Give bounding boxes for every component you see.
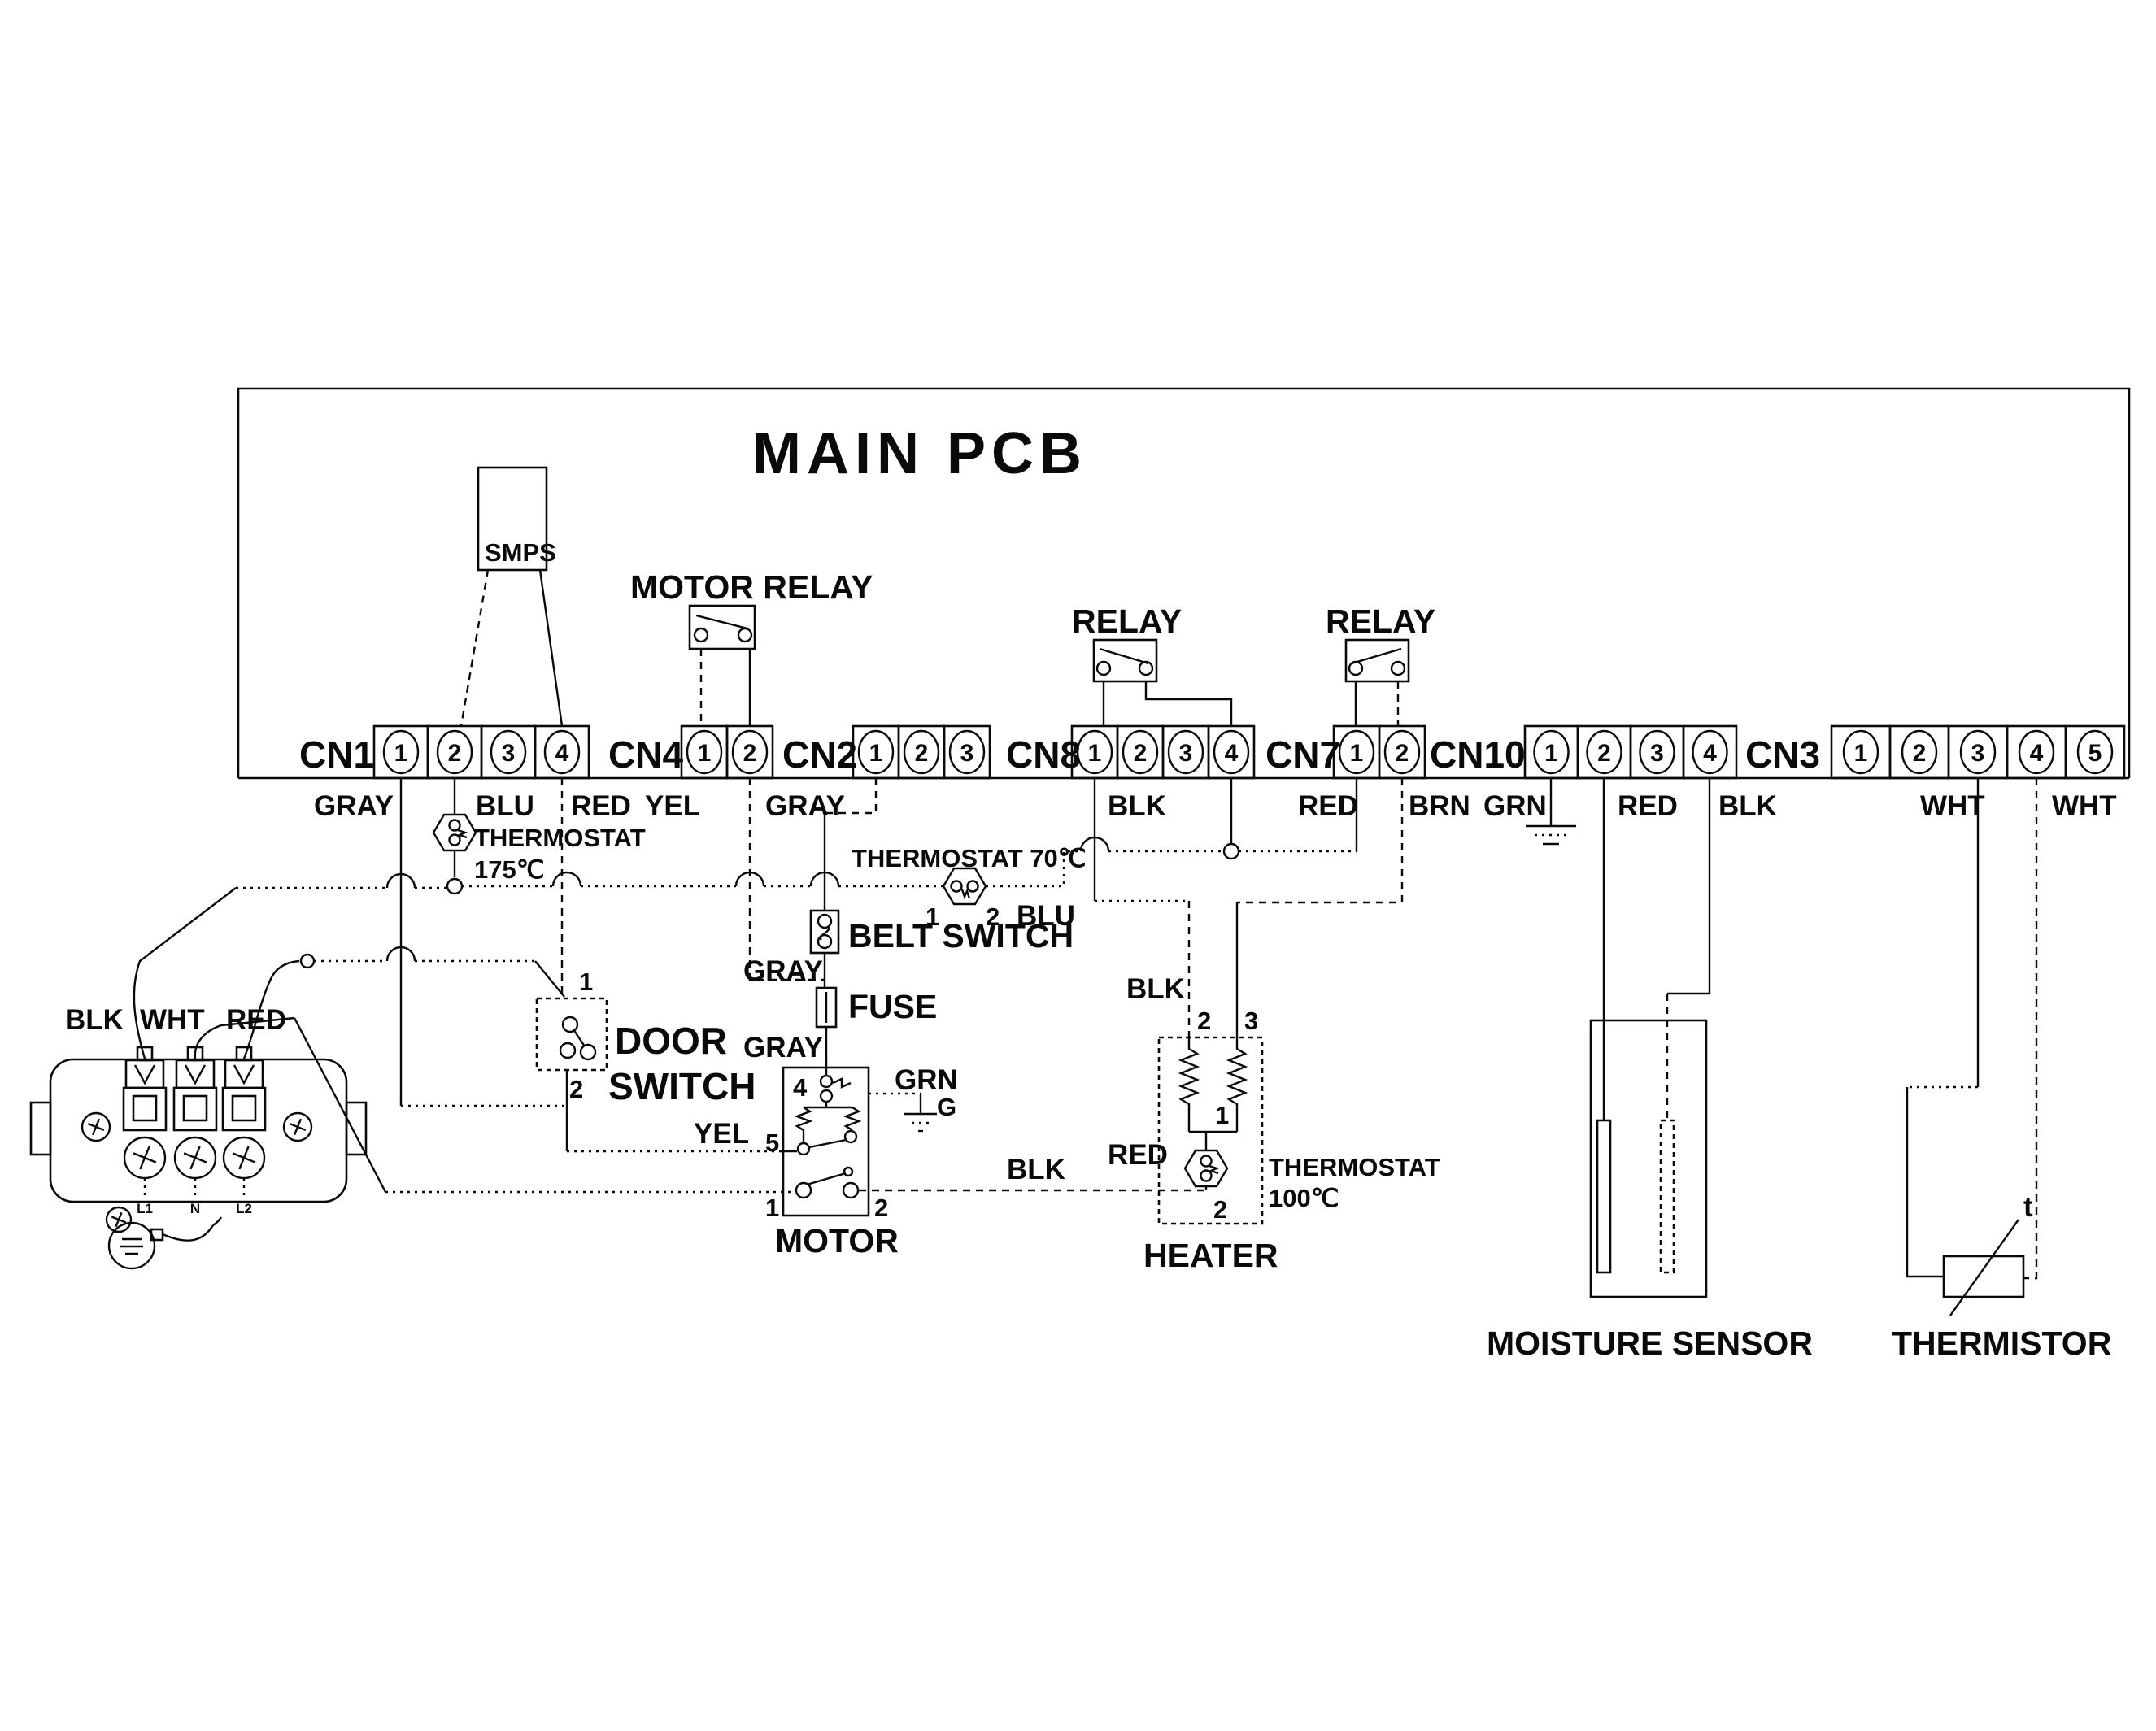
- connector-CN4-pin1-number: 1: [698, 740, 712, 767]
- connector-CN8-label: CN8: [1006, 733, 1081, 776]
- relay-cn7: RELAY: [1326, 602, 1435, 726]
- belt-switch-label: BELT SWITCH: [848, 917, 1074, 955]
- moisture-sensor: MOISTURE SENSOR: [1487, 778, 1813, 1362]
- door-switch-label-2: SWITCH: [608, 1065, 756, 1107]
- connector-CN2-label: CN2: [782, 733, 857, 776]
- hex175-contact: [450, 820, 460, 831]
- hex100-contact: [1201, 1171, 1212, 1181]
- connector-CN8-pin1-number: 1: [1088, 740, 1102, 767]
- motor-relay: MOTOR RELAY: [630, 568, 873, 726]
- wire-label-red-cn1: RED: [571, 790, 631, 822]
- heater-pin1: 1: [1215, 1101, 1229, 1129]
- motor-pin5: 5: [765, 1129, 779, 1157]
- relay-cn8: RELAY: [1072, 602, 1231, 726]
- wire-label-yel-motor: YEL: [694, 1118, 749, 1150]
- wire-label-gray-cn2: GRAY: [765, 790, 845, 822]
- connector-CN10-pin4-number: 4: [1703, 740, 1717, 767]
- wire-label-blu-cn1: BLU: [476, 790, 534, 822]
- connector-CN3-pin1-number: 1: [1854, 740, 1868, 767]
- smps-label: SMPS: [485, 538, 556, 567]
- connector-CN3-pin2-number: 2: [1913, 740, 1927, 767]
- thermostat-175-label-2: 175℃: [474, 855, 545, 884]
- wire-label-gray-fuse: GRAY: [743, 1032, 823, 1063]
- wire-label-blk-heater: BLK: [1126, 973, 1185, 1005]
- connector-CN2: CN2123: [782, 726, 990, 778]
- wire-label-blk-motor: BLK: [1007, 1154, 1065, 1185]
- pcb-connector-row: CN11234CN412CN2123CN81234CN712CN101234CN…: [299, 726, 2124, 778]
- thermostat-175-label-1: THERMOSTAT: [474, 824, 646, 852]
- main-pcb-outline: [238, 389, 2129, 778]
- connector-CN4: CN412: [608, 726, 773, 778]
- thermistor: t THERMISTOR: [1892, 778, 2111, 1362]
- connector-CN2-pin1-number: 1: [869, 740, 883, 767]
- thermostat-70-label: THERMOSTAT 70℃: [852, 844, 1087, 872]
- connector-CN7-label: CN7: [1265, 733, 1340, 776]
- connector-CN1-pin2-number: 2: [448, 740, 462, 767]
- terminal-body: [223, 1088, 265, 1130]
- motor-relay-label: MOTOR RELAY: [630, 568, 873, 606]
- relay-cn8-label: RELAY: [1072, 602, 1182, 640]
- ground-g-label: G: [937, 1093, 956, 1121]
- wire-label-blk-cn10: BLK: [1718, 790, 1777, 822]
- terminal-screw-cross: [228, 1142, 259, 1173]
- hex70-element: [962, 889, 969, 898]
- moisture-sensor-label: MOISTURE SENSOR: [1487, 1324, 1813, 1362]
- smps-block: SMPS: [461, 468, 562, 726]
- terminal-window: [233, 1096, 255, 1120]
- motor-pin2: 2: [874, 1194, 888, 1222]
- motor-label: MOTOR: [775, 1222, 899, 1259]
- door-switch-pin2: 2: [569, 1075, 583, 1103]
- motor: 4 5 1 2 MOTOR: [765, 1068, 899, 1259]
- connector-CN2-pin3-number: 3: [960, 740, 974, 767]
- connector-CN10-label: CN10: [1430, 733, 1526, 776]
- connector-CN2-pin2-number: 2: [915, 740, 929, 767]
- connector-CN3-pin3-number: 3: [1971, 740, 1985, 767]
- wire-label-red-cn7: RED: [1298, 790, 1358, 822]
- page-title: MAIN PCB: [752, 421, 1087, 486]
- terminal-n-label: N: [190, 1201, 200, 1216]
- motor-pin1: 1: [765, 1194, 779, 1222]
- connector-CN7-pin1-number: 1: [1350, 740, 1364, 767]
- thermistor-label: THERMISTOR: [1892, 1324, 2111, 1362]
- connector-CN4-pin2-number: 2: [743, 740, 757, 767]
- wire-label-wht-cn3b: WHT: [2052, 790, 2117, 822]
- thermistor-t-symbol: t: [2023, 1191, 2033, 1223]
- door-switch-label-1: DOOR: [615, 1020, 727, 1062]
- hex70-contact: [968, 881, 978, 892]
- connector-wire-labels: GRAY BLU RED YEL GRAY BLK RED BRN GRN RE…: [314, 790, 2117, 822]
- connector-CN1: CN11234: [299, 726, 589, 778]
- connector-CN7-pin2-number: 2: [1396, 740, 1409, 767]
- wire-label-grn-motor: GRN: [895, 1064, 958, 1096]
- terminal-clamp-detail: [135, 1065, 155, 1083]
- connector-CN3-label: CN3: [1745, 733, 1820, 776]
- connector-CN10: CN101234: [1430, 726, 1736, 778]
- fuse-label: FUSE: [848, 988, 937, 1025]
- wiring-diagram-page: MAIN PCB SMPS MOTOR RELAY RELAY RELAY: [0, 0, 2156, 1731]
- connector-CN10-pin3-number: 3: [1650, 740, 1664, 767]
- wire-label-brn-cn7: BRN: [1409, 790, 1470, 822]
- wire-label-red-cn10: RED: [1618, 790, 1678, 822]
- wire-label-blk-cord: BLK: [65, 1004, 124, 1036]
- connector-CN10-pin1-number: 1: [1544, 740, 1558, 767]
- wire-label-wht-cord: WHT: [140, 1004, 205, 1036]
- wiring-diagram: MAIN PCB SMPS MOTOR RELAY RELAY RELAY: [0, 0, 2156, 1731]
- wire-label-yel-cn4: YEL: [645, 790, 700, 822]
- heater-label: HEATER: [1143, 1237, 1278, 1274]
- terminal-screw-cross: [128, 1142, 160, 1173]
- wire-label-blk-cn8: BLK: [1108, 790, 1166, 822]
- connector-CN3-pin5-number: 5: [2088, 740, 2102, 767]
- connector-CN4-label: CN4: [608, 733, 683, 776]
- wire-label-wht-cn3a: WHT: [1920, 790, 1985, 822]
- thermostat-100-label-1: THERMOSTAT: [1269, 1153, 1440, 1181]
- connector-CN8-pin2-number: 2: [1134, 740, 1148, 767]
- connector-CN1-pin3-number: 3: [502, 740, 516, 767]
- terminal-l2-label: L2: [236, 1201, 252, 1216]
- connector-CN10-pin2-number: 2: [1597, 740, 1611, 767]
- wire-motor-heater: BLK RED: [859, 1139, 1206, 1190]
- terminal-clamp-detail: [234, 1065, 254, 1083]
- heater-pin2b: 2: [1213, 1195, 1227, 1224]
- hex70-contact: [952, 881, 962, 892]
- hex100-contact: [1201, 1156, 1212, 1167]
- screw-cross: [286, 1116, 308, 1137]
- connector-CN8: CN81234: [1006, 726, 1254, 778]
- wire-label-red-cord: RED: [226, 1004, 286, 1036]
- thermostat-100-label-2: 100℃: [1269, 1184, 1339, 1212]
- heater-pin2: 2: [1197, 1007, 1211, 1035]
- door-switch-pin1: 1: [579, 968, 593, 996]
- terminal-l1-label: L1: [137, 1201, 153, 1216]
- wire-label-grn-cn10: GRN: [1483, 790, 1547, 822]
- connector-CN8-pin4-number: 4: [1225, 740, 1239, 767]
- connector-CN3-pin4-number: 4: [2030, 740, 2044, 767]
- terminal-body: [174, 1088, 216, 1130]
- relay-cn7-label: RELAY: [1326, 602, 1435, 640]
- connector-CN3: CN312345: [1745, 726, 2124, 778]
- terminal-window: [184, 1096, 207, 1120]
- terminal-clamp-detail: [185, 1065, 205, 1083]
- connector-CN8-pin3-number: 3: [1179, 740, 1193, 767]
- wire-label-gray-belt: GRAY: [743, 955, 823, 987]
- wire-label-gray-cn1: GRAY: [314, 790, 394, 822]
- terminal-window: [133, 1096, 156, 1120]
- connector-CN1-label: CN1: [299, 733, 374, 776]
- motor-ground: GRN G: [869, 1064, 958, 1131]
- connector-CN1-pin1-number: 1: [394, 740, 408, 767]
- heater-pin3: 3: [1244, 1007, 1258, 1035]
- door-switch: 1 2 DOOR SWITCH: [537, 968, 756, 1107]
- terminal-screw-cross: [179, 1142, 211, 1173]
- motor-pin4: 4: [793, 1073, 808, 1102]
- connector-CN1-pin4-number: 4: [555, 740, 569, 767]
- terminal-body: [124, 1088, 166, 1130]
- connector-CN7: CN712: [1265, 726, 1425, 778]
- screw-cross: [85, 1116, 107, 1137]
- hex175-contact: [450, 835, 460, 846]
- heater: 2 3 1 2 THERMOSTAT 100℃ HEATER: [1143, 1007, 1440, 1274]
